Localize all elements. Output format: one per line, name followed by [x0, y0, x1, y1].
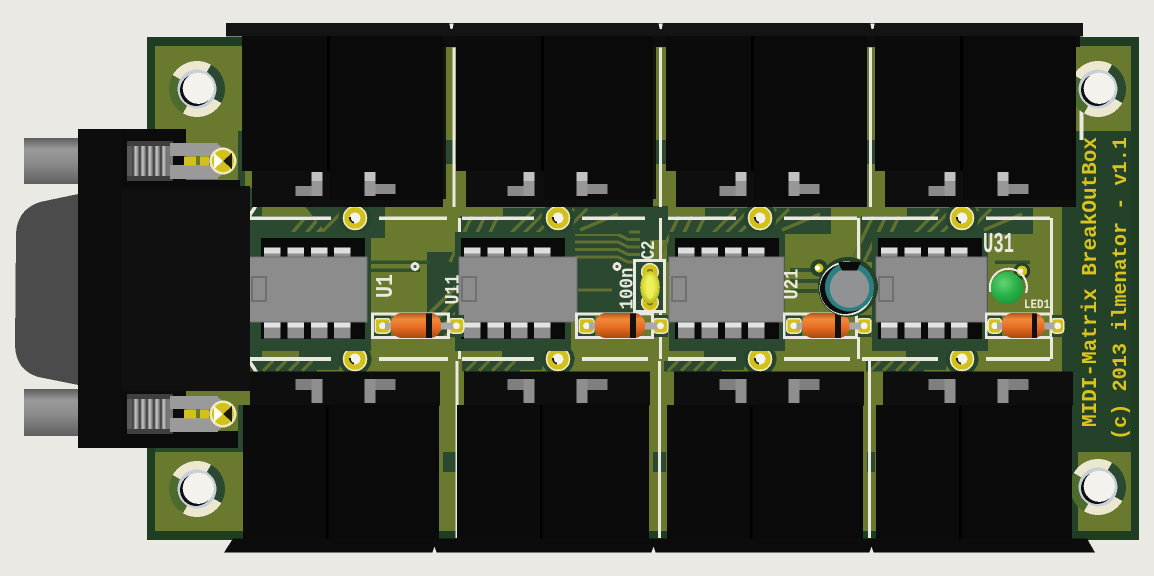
svg-text:U31: U31 — [983, 228, 1014, 261]
svg-text:LED1: LED1 — [1024, 298, 1050, 312]
svg-text:MIDI-Matrix BreakOutBox: MIDI-Matrix BreakOutBox — [1080, 137, 1103, 427]
svg-text:U21: U21 — [782, 269, 805, 300]
svg-text:U1: U1 — [373, 274, 400, 298]
svg-text:100n: 100n — [617, 268, 639, 310]
svg-text:(c) 2013 ilmenator - v1.1: (c) 2013 ilmenator - v1.1 — [1110, 137, 1133, 440]
svg-text:U11: U11 — [443, 275, 466, 305]
svg-text:C2: C2 — [638, 241, 660, 260]
